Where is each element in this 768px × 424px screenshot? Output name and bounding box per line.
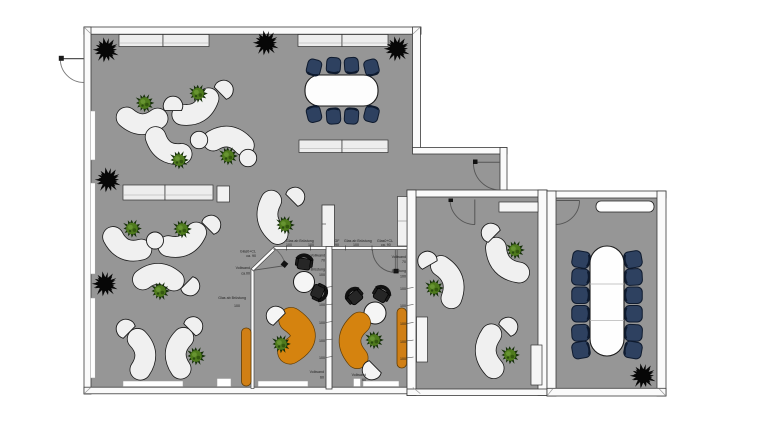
svg-text:100: 100 — [319, 303, 325, 307]
svg-text:100: 100 — [400, 357, 406, 361]
svg-text:70: 70 — [402, 260, 406, 264]
svg-text:90: 90 — [335, 243, 339, 247]
svg-text:100: 100 — [400, 322, 406, 326]
svg-text:100: 100 — [234, 304, 240, 308]
svg-text:Vollwand: Vollwand — [311, 254, 325, 258]
svg-text:100: 100 — [319, 339, 325, 343]
svg-text:100: 100 — [400, 275, 406, 279]
svg-text:Brüstung: Brüstung — [311, 268, 325, 272]
svg-text:100: 100 — [319, 321, 325, 325]
svg-text:Vollwand: Vollwand — [236, 266, 250, 270]
svg-text:60: 60 — [362, 378, 366, 382]
svg-text:100: 100 — [286, 243, 292, 247]
svg-text:100: 100 — [308, 243, 314, 247]
svg-text:100: 100 — [400, 287, 406, 291]
svg-text:Glas ab Brüstung: Glas ab Brüstung — [218, 296, 246, 300]
svg-text:Vollwand: Vollwand — [310, 370, 324, 374]
svg-text:100: 100 — [400, 340, 406, 344]
svg-text:100: 100 — [353, 243, 359, 247]
svg-text:ca. 90: ca. 90 — [381, 243, 391, 247]
svg-text:70: 70 — [321, 259, 325, 263]
svg-text:Vollwand: Vollwand — [392, 255, 406, 259]
svg-text:ca. 90: ca. 90 — [246, 254, 256, 258]
svg-text:100: 100 — [319, 286, 325, 290]
svg-text:100: 100 — [400, 304, 406, 308]
svg-text:100: 100 — [319, 356, 325, 360]
svg-text:ca.00: ca.00 — [241, 272, 250, 276]
svg-text:60: 60 — [320, 376, 324, 380]
svg-text:Glas0+CL: Glas0+CL — [240, 250, 256, 254]
svg-text:100: 100 — [319, 273, 325, 277]
svg-text:Brüstung: Brüstung — [392, 269, 406, 273]
svg-text:Vollwand: Vollwand — [352, 373, 366, 377]
